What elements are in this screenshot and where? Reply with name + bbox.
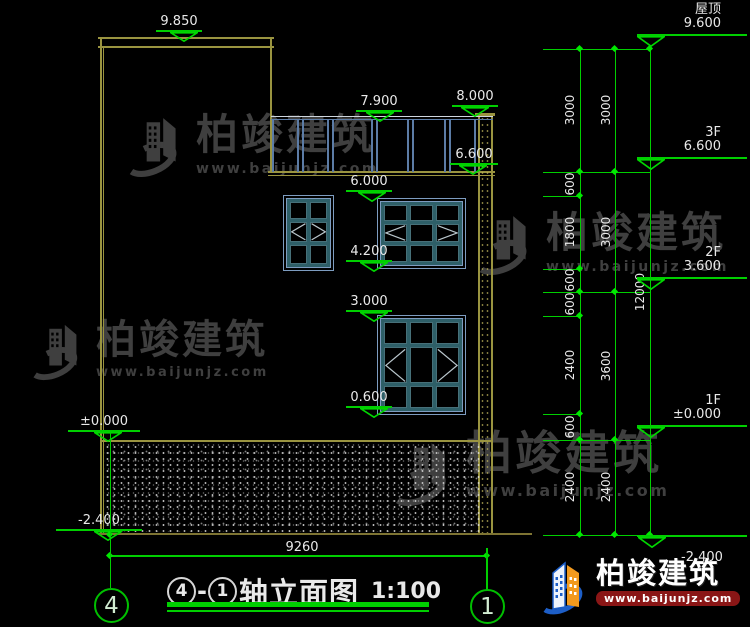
window-pane bbox=[310, 245, 327, 264]
title-underline-thick bbox=[167, 602, 429, 607]
elevation-triangle-icon bbox=[360, 408, 388, 418]
window-pane bbox=[436, 386, 459, 408]
level-label: 3F bbox=[637, 126, 721, 140]
watermark-brand: 柏竣建筑 bbox=[196, 114, 379, 156]
railing-post bbox=[444, 120, 446, 172]
footing-line bbox=[98, 533, 532, 535]
railing-post bbox=[272, 120, 274, 172]
elevation-value: 8.000 bbox=[452, 90, 498, 104]
ground-hatch bbox=[104, 444, 481, 532]
brand-logo: 柏竣建筑 www.baijunjz.com bbox=[540, 559, 740, 617]
title-underline-thin bbox=[167, 610, 429, 612]
elevation-marker-0600: 0.600 bbox=[346, 391, 392, 418]
window-pane bbox=[410, 322, 433, 344]
elevation-marker-6000: 6.000 bbox=[346, 175, 392, 202]
railing-post bbox=[302, 120, 304, 172]
level-value: 9.600 bbox=[637, 17, 721, 31]
window-pane bbox=[384, 205, 407, 221]
elevation-triangle-icon bbox=[94, 432, 122, 442]
dim-tick bbox=[576, 288, 583, 295]
axis-number: 1 bbox=[480, 594, 495, 620]
window-pane bbox=[290, 202, 307, 219]
elevation-value: ±0.000 bbox=[68, 415, 140, 429]
window-casement-right bbox=[436, 224, 459, 242]
window-pane bbox=[410, 205, 433, 221]
axis-bubble-4: 4 bbox=[94, 588, 129, 623]
elevation-value: 0.600 bbox=[346, 391, 392, 405]
window-pane bbox=[436, 205, 459, 221]
brand-name: 柏竣建筑 bbox=[596, 559, 740, 588]
axis-number: 4 bbox=[104, 593, 119, 619]
dim-label: 2400 bbox=[563, 457, 577, 517]
window-pane bbox=[384, 322, 407, 344]
watermark-logo-icon bbox=[30, 320, 88, 382]
window-pane bbox=[410, 386, 433, 408]
elevation-marker-3000: 3.000 bbox=[346, 295, 392, 322]
watermark: 柏竣建筑 www.baijunjz.com bbox=[126, 114, 379, 178]
elevation-marker-6600: 6.600 bbox=[450, 148, 498, 175]
dim-tick-line bbox=[543, 49, 650, 50]
title-dash: - bbox=[197, 577, 207, 605]
dim-tick-line bbox=[543, 172, 650, 173]
elevation-marker-9850: 9.850 bbox=[156, 15, 202, 42]
column-right-line bbox=[491, 116, 493, 535]
level-value: 6.600 bbox=[637, 140, 721, 154]
window-pane bbox=[410, 347, 433, 384]
dim-tick bbox=[611, 531, 618, 538]
dim-tick bbox=[576, 531, 583, 538]
dim-tick-line bbox=[543, 440, 650, 441]
level-marker-1f: 1F ±0.000 bbox=[637, 394, 747, 438]
dim-label: 600 bbox=[563, 274, 577, 334]
elevation-marker-4200: 4.200 bbox=[346, 245, 392, 272]
window-pane bbox=[436, 245, 459, 262]
elevation-value: -2.400 bbox=[56, 514, 142, 528]
elevation-triangle-icon bbox=[170, 32, 198, 42]
elevation-triangle-icon bbox=[366, 112, 394, 122]
watermark-brand: 柏竣建筑 bbox=[96, 320, 269, 360]
watermark-logo-icon bbox=[126, 114, 188, 178]
dim-tick bbox=[611, 168, 618, 175]
window-casement-left bbox=[384, 224, 407, 242]
elevation-value: 3.000 bbox=[346, 295, 392, 309]
dim-tick-line bbox=[543, 535, 650, 536]
railing-post bbox=[371, 120, 373, 172]
window-pane bbox=[310, 202, 327, 219]
railing-post bbox=[332, 120, 334, 172]
elevation-triangle-icon bbox=[360, 262, 388, 272]
elevation-marker-zero: ±0.000 bbox=[68, 415, 140, 442]
level-marker-3f: 3F 6.600 bbox=[637, 126, 747, 170]
elevation-triangle-icon bbox=[358, 192, 386, 202]
railing-post bbox=[376, 120, 378, 172]
ground-line bbox=[100, 440, 493, 442]
elevation-triangle-icon bbox=[637, 36, 665, 47]
watermark: 柏竣建筑 www.baijunjz.com bbox=[30, 320, 269, 382]
level-label: 屋顶 bbox=[637, 3, 721, 17]
window-pane bbox=[410, 245, 433, 262]
left-wall-line bbox=[100, 37, 102, 535]
window-pane bbox=[290, 245, 307, 264]
overall-width-dim-line bbox=[110, 555, 487, 557]
dim-tick bbox=[611, 288, 618, 295]
dim-label: 2400 bbox=[599, 457, 613, 517]
elevation-triangle-icon bbox=[637, 159, 665, 170]
elevation-value: 4.200 bbox=[346, 245, 392, 259]
level-value: 3.600 bbox=[637, 260, 721, 274]
elevation-marker-neg2400: -2.400 bbox=[56, 514, 142, 541]
dim-tick bbox=[611, 45, 618, 52]
level-label: 1F bbox=[637, 394, 721, 408]
level-label: 2F bbox=[637, 246, 721, 260]
elevation-drawing: 柏竣建筑 www.baijunjz.com 柏竣建筑 www.baijunjz.… bbox=[0, 0, 750, 627]
tower-roof-slab-line bbox=[98, 46, 274, 48]
grid-line-4 bbox=[110, 430, 112, 588]
elevation-marker-8000: 8.000 bbox=[452, 90, 498, 117]
railing-post bbox=[412, 120, 414, 172]
dim-tick bbox=[576, 312, 583, 319]
window-casement-right bbox=[310, 222, 327, 242]
level-value: ±0.000 bbox=[637, 408, 721, 422]
dim-tick bbox=[576, 410, 583, 417]
window-2f-left bbox=[283, 195, 334, 271]
dim-tick bbox=[576, 192, 583, 199]
window-casement-left bbox=[290, 222, 307, 242]
dim-tick bbox=[576, 45, 583, 52]
level-marker-roof: 屋顶 9.600 bbox=[637, 3, 747, 47]
elevation-triangle-icon bbox=[637, 279, 665, 290]
brand-url: www.baijunjz.com bbox=[596, 591, 740, 606]
railing-post bbox=[297, 120, 299, 172]
elevation-marker-7900: 7.900 bbox=[356, 95, 402, 122]
dim-label: 3000 bbox=[599, 202, 613, 262]
brand-logo-icon bbox=[540, 559, 590, 617]
elevation-value: 6.600 bbox=[450, 148, 498, 162]
window-pane bbox=[436, 322, 459, 344]
column-hatch bbox=[480, 116, 491, 535]
window-pane bbox=[410, 224, 433, 242]
dim-label: 3000 bbox=[563, 80, 577, 140]
elevation-triangle-icon bbox=[638, 537, 666, 548]
dim-label: 3000 bbox=[599, 80, 613, 140]
railing-post bbox=[327, 120, 329, 172]
dim-label: 3600 bbox=[599, 336, 613, 396]
window-casement-right bbox=[436, 347, 459, 384]
railing-post bbox=[407, 120, 409, 172]
grid-line-1 bbox=[486, 548, 488, 590]
elevation-triangle-icon bbox=[360, 312, 388, 322]
window-casement-left bbox=[384, 347, 407, 384]
axis-bubble-1: 1 bbox=[470, 589, 505, 624]
watermark-url: www.baijunjz.com bbox=[96, 365, 269, 380]
dim-label: 2400 bbox=[563, 335, 577, 395]
level-marker-2f: 2F 3.600 bbox=[637, 246, 747, 290]
elevation-value: 6.000 bbox=[346, 175, 392, 189]
dim-label: 600 bbox=[563, 397, 577, 457]
elevation-triangle-icon bbox=[459, 165, 487, 175]
title-scale: 1:100 bbox=[371, 579, 441, 604]
overall-width-dim: 9260 bbox=[272, 540, 332, 555]
elevation-triangle-icon bbox=[461, 107, 489, 117]
elevation-triangle-icon bbox=[637, 427, 665, 438]
dim-tick bbox=[576, 168, 583, 175]
elevation-value: 9.850 bbox=[156, 15, 202, 29]
elevation-value: 7.900 bbox=[356, 95, 402, 109]
